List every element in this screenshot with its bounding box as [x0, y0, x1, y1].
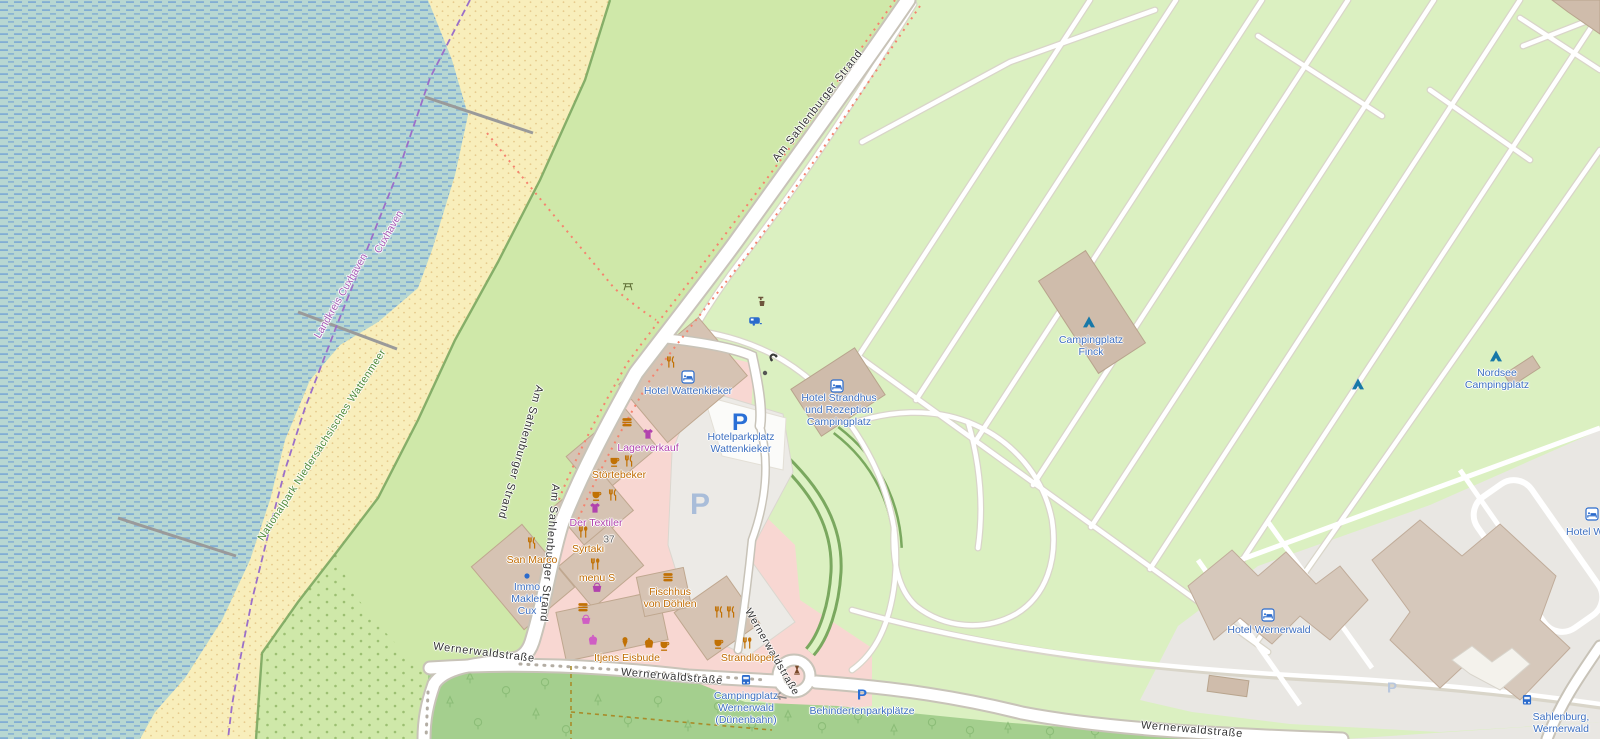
restaurant-icon [741, 637, 754, 650]
fast-food-icon [662, 571, 675, 584]
monument-icon [792, 665, 803, 676]
ice-cream-icon [619, 636, 632, 649]
restaurant-icon [526, 537, 539, 550]
bus-stop-icon [1521, 694, 1534, 707]
hotel-bed-icon [1585, 507, 1599, 521]
office-dot-icon [523, 572, 532, 581]
restaurant-icon [665, 356, 678, 369]
restaurant-icon [623, 455, 636, 468]
bakery-icon [587, 634, 600, 647]
restaurant-icon [577, 526, 590, 539]
campsite-tent-icon [1489, 349, 1504, 364]
bus-stop-icon [740, 674, 753, 687]
caravan-site-icon [748, 314, 762, 328]
campsite-tent-icon [1082, 315, 1097, 330]
map-canvas[interactable]: Am Sahlenburger Strand Am Sahlenburger S… [0, 0, 1600, 739]
clothes-shop-icon [642, 428, 655, 441]
fast-food-icon [621, 416, 634, 429]
cafe-icon [591, 489, 604, 502]
water-tap-icon [756, 295, 769, 308]
hotel-bed-icon [1261, 608, 1275, 622]
campsite-tent-icon [1351, 377, 1366, 392]
picnic-table-icon [622, 280, 635, 293]
clothes-shop-icon [589, 502, 602, 515]
restaurant-icon [589, 558, 602, 571]
restaurant-icon [725, 606, 738, 619]
shop-basket-icon [591, 581, 604, 594]
parking-watermark-mid: P [690, 488, 710, 522]
bakery-icon [643, 637, 656, 650]
parking-watermark-corner: P [1387, 680, 1397, 697]
cafe-icon [609, 455, 622, 468]
hotel-bed-icon [681, 370, 695, 384]
restaurant-icon [607, 489, 620, 502]
shop-basket-icon [580, 613, 593, 626]
parking-icon-hotelparkplatz: P [732, 409, 748, 437]
parking-icon-behinderten: P [857, 687, 867, 704]
hotel-bed-icon [830, 379, 844, 393]
cafe-icon [713, 637, 726, 650]
telephone-icon [767, 351, 780, 364]
map-base-layers [0, 0, 1600, 739]
cafe-icon [659, 639, 672, 652]
